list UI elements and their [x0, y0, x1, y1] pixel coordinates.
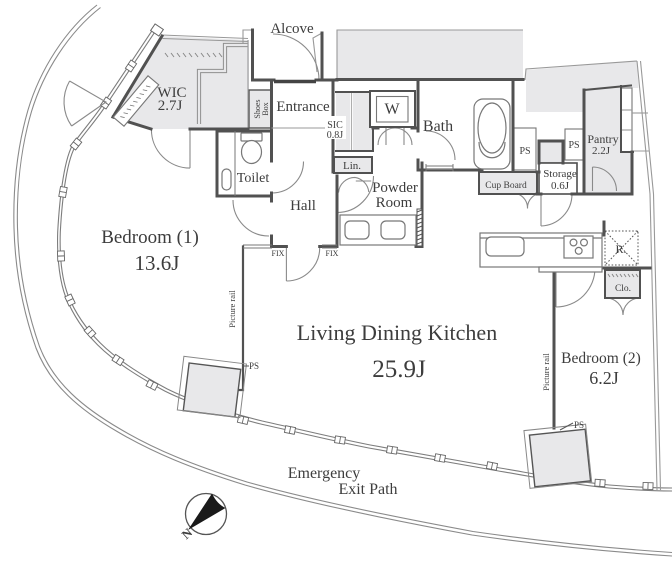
svg-text:2.2J: 2.2J	[592, 145, 611, 157]
svg-text:Room: Room	[376, 195, 413, 211]
svg-text:Bedroom (2): Bedroom (2)	[561, 350, 641, 367]
svg-text:0.8J: 0.8J	[327, 130, 344, 141]
svg-text:FIX: FIX	[272, 249, 285, 258]
svg-text:PS: PS	[249, 361, 259, 371]
svg-text:Toilet: Toilet	[237, 171, 270, 186]
svg-text:FIX: FIX	[326, 249, 339, 258]
svg-text:Exit Path: Exit Path	[338, 481, 397, 498]
svg-text:PS: PS	[519, 146, 530, 157]
svg-text:R.: R.	[615, 242, 626, 256]
svg-text:0.6J: 0.6J	[551, 180, 570, 192]
svg-text:2.7J: 2.7J	[158, 98, 183, 114]
svg-text:W: W	[384, 101, 400, 118]
svg-text:Cup Board: Cup Board	[485, 181, 527, 191]
svg-text:25.9J: 25.9J	[372, 356, 426, 383]
svg-text:Powder: Powder	[372, 180, 418, 196]
svg-text:13.6J: 13.6J	[135, 251, 180, 275]
svg-text:Entrance: Entrance	[276, 99, 330, 115]
svg-text:Emergency: Emergency	[288, 465, 361, 482]
svg-text:PS: PS	[574, 420, 584, 430]
svg-text:Picture rail: Picture rail	[541, 353, 551, 391]
svg-text:Living Dining Kitchen: Living Dining Kitchen	[297, 320, 497, 345]
svg-text:Storage: Storage	[543, 168, 577, 180]
svg-text:Bedroom (1): Bedroom (1)	[101, 227, 199, 248]
svg-text:Hall: Hall	[290, 198, 316, 214]
svg-text:Lin.: Lin.	[343, 160, 361, 172]
svg-text:Pantry: Pantry	[587, 132, 618, 146]
svg-text:6.2J: 6.2J	[589, 368, 619, 388]
svg-text:Picture rail: Picture rail	[227, 290, 237, 328]
svg-text:PS: PS	[568, 140, 579, 151]
svg-text:Alcove: Alcove	[270, 21, 314, 37]
svg-text:Clo.: Clo.	[615, 284, 631, 294]
svg-text:Bath: Bath	[423, 118, 453, 135]
